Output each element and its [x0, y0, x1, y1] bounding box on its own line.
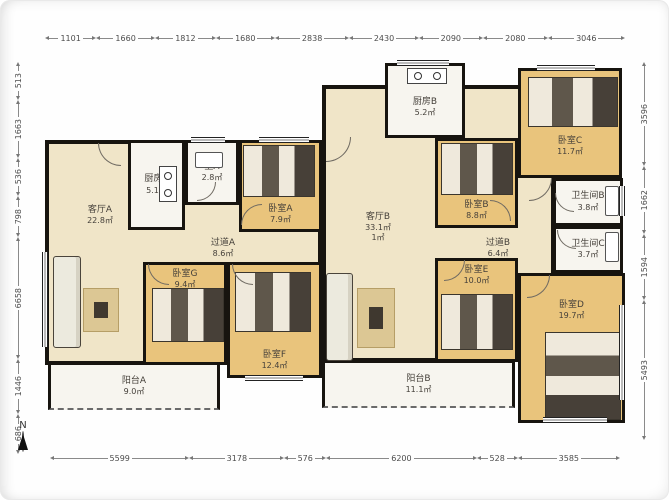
dimension-chain-right: 3596166215945493 — [638, 62, 650, 440]
coffee-table-rug — [357, 288, 395, 348]
room-balcony-b: 阳台B 11.1㎡ — [322, 360, 515, 408]
window — [543, 417, 607, 423]
dimension-line — [315, 458, 322, 459]
dimension-segment: 5493 — [640, 300, 649, 440]
arrow-down-icon — [642, 436, 646, 440]
dimension-line — [198, 38, 212, 39]
window — [245, 375, 303, 381]
dimension-line — [507, 458, 514, 459]
dimension-line — [193, 458, 224, 459]
window — [619, 305, 625, 400]
bed — [441, 294, 513, 350]
dimension-line — [644, 304, 645, 358]
room-balcony-a: 阳台A 9.0㎡ — [48, 362, 220, 410]
dimension-segment: 1663 — [14, 100, 23, 158]
dimension-line — [138, 38, 151, 39]
dimension-line — [279, 38, 300, 39]
dimension-line — [353, 38, 371, 39]
coffee-table-rug — [83, 288, 119, 332]
dimension-segment: 798 — [14, 196, 23, 238]
dimension-line — [481, 458, 488, 459]
dimension-value: 2430 — [372, 34, 396, 43]
dimension-line — [644, 382, 645, 436]
dimension-line — [463, 38, 479, 39]
window — [397, 60, 449, 66]
window — [259, 137, 309, 143]
dimension-value: 2838 — [300, 34, 324, 43]
dimension-segment: 536 — [14, 158, 23, 196]
sofa — [53, 256, 81, 348]
window — [537, 65, 595, 71]
bathroom-sink — [605, 186, 619, 216]
room-area: 9.0㎡ — [51, 387, 217, 397]
stove — [159, 166, 177, 202]
burner-icon — [414, 72, 422, 80]
dimension-line — [396, 38, 414, 39]
room-area: 19.7㎡ — [521, 311, 622, 321]
dimension-value: 513 — [14, 71, 23, 90]
coffee-table — [94, 302, 108, 318]
room-area: 5.2㎡ — [388, 108, 462, 118]
window — [42, 252, 48, 347]
burner-icon — [164, 172, 172, 180]
dimension-segment: 1660 — [96, 34, 155, 43]
floorplan-canvas: 客厅A 22.8㎡ 过道A 8.6㎡ 客厅B 33.1㎡ 1㎡ 过道B 6.4㎡… — [45, 60, 625, 425]
room-name: 阳台A — [51, 376, 217, 387]
dimension-segment: 1812 — [155, 34, 216, 43]
dimension-line — [552, 38, 575, 39]
bed — [545, 332, 621, 420]
room-label-balcony-b: 阳台B 11.1㎡ — [325, 363, 512, 406]
dimension-line — [18, 141, 19, 154]
dimension-line — [54, 458, 108, 459]
dimension-segment: 1446 — [14, 359, 23, 414]
dimension-line — [487, 38, 503, 39]
dimension-value: 3178 — [225, 454, 249, 463]
room-name: 卧室F — [230, 350, 319, 361]
dimension-segment: 2090 — [419, 34, 484, 43]
dimension-segment: 2080 — [483, 34, 547, 43]
dimension-segment: 528 — [477, 454, 518, 463]
floorplan-screenshot: 110116601812168028382430209020803046 559… — [0, 0, 669, 500]
dimension-value: 6658 — [14, 286, 23, 310]
dimension-line — [220, 38, 233, 39]
dimension-segment: 576 — [284, 454, 326, 463]
dimension-line — [598, 38, 621, 39]
compass-dial-icon — [22, 431, 24, 452]
dimension-segment: 6658 — [14, 237, 23, 359]
dimension-segment: 3178 — [189, 454, 284, 463]
dimension-value: 798 — [14, 207, 23, 226]
dimension-line — [423, 38, 439, 39]
dimension-line — [644, 66, 645, 102]
dimension-line — [18, 399, 19, 410]
dimension-value: 1101 — [58, 34, 82, 43]
dimension-line — [18, 310, 19, 355]
dimension-value: 1680 — [233, 34, 257, 43]
compass-needle-icon — [18, 434, 28, 450]
dimension-line — [288, 458, 295, 459]
coffee-table — [369, 307, 383, 329]
dimension-segment: 2430 — [349, 34, 418, 43]
dimension-value: 2080 — [503, 34, 527, 43]
dimension-line — [18, 363, 19, 374]
room-name: 卧室D — [521, 300, 622, 311]
dimension-value: 536 — [14, 167, 23, 186]
dimension-line — [644, 238, 645, 255]
dimension-line — [132, 458, 186, 459]
dimension-segment: 2838 — [275, 34, 350, 43]
room-name: 厨房B — [388, 97, 462, 108]
dimension-segment: 3585 — [518, 454, 620, 463]
bathroom-sink — [605, 232, 619, 262]
dimension-value: 5599 — [108, 454, 132, 463]
burner-icon — [433, 72, 441, 80]
dimension-value: 1594 — [640, 255, 649, 279]
dimension-value: 5493 — [640, 358, 649, 382]
dimension-line — [159, 38, 173, 39]
dimension-segment: 1594 — [640, 234, 649, 300]
dimension-value: 1446 — [14, 374, 23, 398]
dimension-chain-bottom: 5599317857662005283585 — [50, 452, 620, 464]
room-area: 11.7㎡ — [521, 147, 619, 157]
dimension-line — [522, 458, 557, 459]
dimension-line — [644, 126, 645, 162]
dimension-value: 1660 — [113, 34, 137, 43]
dimension-segment: 513 — [14, 62, 23, 100]
room-name: 卧室C — [521, 136, 619, 147]
dimension-value: 528 — [488, 454, 507, 463]
dimension-line — [18, 241, 19, 286]
dimension-line — [257, 38, 270, 39]
bed — [441, 143, 513, 195]
dimension-line — [330, 458, 389, 459]
dimension-line — [249, 458, 280, 459]
dimension-line — [581, 458, 616, 459]
bed — [528, 77, 618, 127]
dimension-value: 3046 — [574, 34, 598, 43]
room-label-balcony-a: 阳台A 9.0㎡ — [51, 365, 217, 408]
sofa — [326, 273, 353, 361]
dimension-line — [324, 38, 345, 39]
dimension-segment: 1662 — [640, 166, 649, 234]
window — [191, 137, 225, 143]
dimension-value: 2090 — [439, 34, 463, 43]
dimension-value: 1812 — [173, 34, 197, 43]
stove — [407, 68, 447, 84]
dimension-segment: 3046 — [548, 34, 625, 43]
north-compass: N — [8, 420, 38, 451]
dimension-value: 3596 — [640, 102, 649, 126]
bed — [243, 145, 315, 197]
dimension-line — [18, 226, 19, 233]
dimension-line — [528, 38, 544, 39]
dimension-value: 1662 — [640, 188, 649, 212]
room-area: 11.1㎡ — [325, 385, 512, 395]
dimension-line — [83, 38, 92, 39]
dimension-segment: 1101 — [45, 34, 96, 43]
dimension-value: 1663 — [14, 117, 23, 141]
dimension-segment: 6200 — [326, 454, 476, 463]
dimension-line — [644, 212, 645, 230]
window — [619, 186, 625, 216]
dimension-line — [100, 38, 113, 39]
dimension-chain-top: 110116601812168028382430209020803046 — [45, 32, 625, 44]
dimension-value: 576 — [296, 454, 315, 463]
dimension-segment: 3596 — [640, 62, 649, 166]
dimension-line — [18, 200, 19, 207]
room-bath-a: 卫A 2.8㎡ — [185, 140, 239, 205]
dimension-line — [644, 170, 645, 188]
dimension-value: 6200 — [389, 454, 413, 463]
dimension-line — [18, 104, 19, 117]
dimension-line — [644, 279, 645, 296]
dimension-chain-left: 513166353679866581446686 — [12, 62, 24, 454]
room-area: 12.4㎡ — [230, 361, 319, 371]
dimension-value: 3585 — [557, 454, 581, 463]
arrow-right-icon — [616, 456, 620, 460]
dimension-segment: 5599 — [50, 454, 189, 463]
bed — [152, 288, 224, 342]
north-label: N — [8, 420, 38, 431]
dimension-line — [414, 458, 473, 459]
burner-icon — [164, 189, 172, 197]
bathroom-sink — [195, 152, 223, 168]
dimension-line — [49, 38, 58, 39]
arrow-right-icon — [621, 36, 625, 40]
dimension-segment: 1680 — [216, 34, 275, 43]
room-name: 阳台B — [325, 374, 512, 385]
